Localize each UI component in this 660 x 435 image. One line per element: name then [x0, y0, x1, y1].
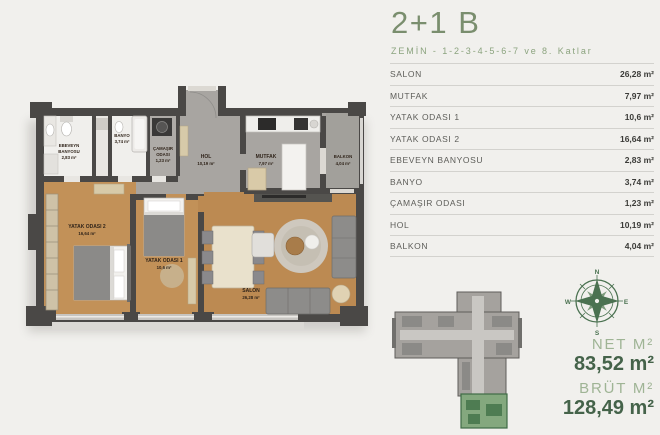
entrance-floor: [184, 90, 222, 116]
table-row: MUTFAK 7,97 m²: [390, 85, 654, 107]
sofa-right: [332, 216, 356, 278]
table-row: YATAK ODASI 1 10,6 m²: [390, 106, 654, 128]
header: 2+1 B ZEMİN - 1-2-3-4-5-6-7 ve 8. Katlar: [391, 5, 593, 56]
net-value: 83,52 m²: [563, 353, 654, 375]
room-label: HOL: [201, 154, 212, 160]
room-area: 10,19 m²: [197, 161, 215, 166]
room-area: 26,28 m²: [620, 69, 654, 79]
bed-blanket: [74, 246, 112, 300]
room-area: 4,04 m²: [336, 161, 351, 166]
room-area: 7,97 m²: [259, 161, 274, 166]
room-label: YATAK ODASI 1: [390, 112, 460, 122]
table-row: HOL 10,19 m²: [390, 214, 654, 236]
toilet-tank: [60, 116, 73, 122]
room-area: 4,04 m²: [625, 241, 654, 251]
table-row: ÇAMAŞIR ODASI 1,23 m²: [390, 192, 654, 214]
side-table: [332, 285, 350, 303]
room-label: BANYO: [114, 133, 130, 138]
room-label: BANYOSU: [58, 149, 80, 154]
table-row: BALKON 4,04 m²: [390, 235, 654, 257]
room-label: EBEVEYN: [59, 143, 80, 148]
table-row: EBEVEYN BANYOSU 2,83 m²: [390, 149, 654, 171]
room-label: YATAK ODASI 2: [390, 134, 460, 144]
balcony-floor: [326, 112, 364, 192]
floor-info: ZEMİN - 1-2-3-4-5-6-7 ve 8. Katlar: [391, 46, 593, 56]
floor-plan: EBEVEYN BANYOSU 2,83 m² BANYO 3,74 m² ÇA…: [26, 86, 368, 330]
room-label: YATAK ODASI 1: [145, 258, 183, 264]
sink: [46, 124, 54, 136]
room-label: HOL: [390, 220, 409, 230]
tv: [262, 195, 306, 198]
brut-label: BRÜT M²: [563, 380, 654, 397]
net-label: NET M²: [563, 336, 654, 353]
room-label: EBEVEYN BANYOSU: [390, 155, 483, 165]
dresser: [94, 184, 124, 194]
brut-value: 128,49 m²: [563, 397, 654, 419]
toilet: [62, 122, 72, 136]
room-area: 1,23 m²: [625, 198, 654, 208]
room-label: SALON: [390, 69, 422, 79]
room-area: 16,64 m²: [620, 134, 654, 144]
table-row: BANYO 3,74 m²: [390, 171, 654, 193]
bed-blanket: [144, 214, 184, 256]
side-coffee-table: [305, 235, 319, 249]
room-label: ODASI: [156, 152, 170, 157]
room-area: 10,6 m²: [625, 112, 654, 122]
room-label: ÇAMAŞIR ODASI: [390, 198, 465, 208]
kitchen-counter: [246, 116, 320, 132]
room-label: BANYO: [390, 177, 423, 187]
cabinet: [188, 258, 196, 304]
kitchen-sink: [310, 120, 318, 128]
room-area: 7,97 m²: [625, 91, 654, 101]
shower: [44, 154, 58, 174]
kitchen-island: [282, 144, 306, 190]
sink: [115, 122, 123, 133]
room-area: 3,74 m²: [625, 177, 654, 187]
room-area: 10,6 m²: [157, 265, 172, 270]
area-summary: NET M² 83,52 m² BRÜT M² 128,49 m²: [563, 336, 654, 424]
dining-table: [212, 226, 254, 288]
table-row: SALON 26,28 m²: [390, 63, 654, 85]
table-row: YATAK ODASI 2 16,64 m²: [390, 128, 654, 150]
room-label: BALKON: [390, 241, 428, 251]
room-label: BALKON: [334, 154, 352, 159]
room-area: 2,83 m²: [625, 155, 654, 165]
page-title: 2+1 B: [391, 5, 593, 41]
kitchen-chair: [248, 168, 266, 190]
wardrobe: [46, 194, 58, 310]
niche-shelf: [94, 118, 110, 130]
room-area: 10,19 m²: [620, 220, 654, 230]
pillow: [148, 201, 180, 211]
compass-letter-e: E: [624, 299, 629, 306]
oven: [294, 118, 308, 130]
room-label: MUTFAK: [390, 91, 428, 101]
armchair: [252, 233, 274, 257]
windows: [52, 314, 304, 330]
hall-console: [180, 126, 188, 156]
coffee-table: [286, 237, 304, 255]
room-label: YATAK ODASI 2: [68, 224, 106, 230]
compass-letter-n: N: [595, 269, 600, 276]
room-area: 26,28 m²: [242, 295, 260, 300]
room-area: 2,83 m²: [62, 155, 77, 160]
rooms-table: SALON 26,28 m² MUTFAK 7,97 m² YATAK ODAS…: [390, 63, 654, 257]
room-area: 16,64 m²: [78, 231, 96, 236]
stove: [258, 118, 276, 130]
pillow: [114, 276, 124, 298]
compass-icon: N E S W: [565, 269, 629, 337]
room-area: 3,74 m²: [115, 139, 130, 144]
compass-letter-w: W: [565, 299, 572, 306]
sofa-bottom: [266, 288, 330, 314]
brochure-page: EBEVEYN BANYOSU 2,83 m² BANYO 3,74 m² ÇA…: [0, 0, 660, 435]
pillow: [114, 250, 124, 272]
building-keyplan: [392, 292, 522, 428]
headboard: [127, 244, 130, 302]
room-area: 1,23 m²: [156, 158, 171, 163]
room-label: MUTFAK: [256, 154, 277, 160]
room-label: ÇAMAŞIR: [153, 146, 174, 151]
room-label: SALON: [242, 288, 260, 294]
